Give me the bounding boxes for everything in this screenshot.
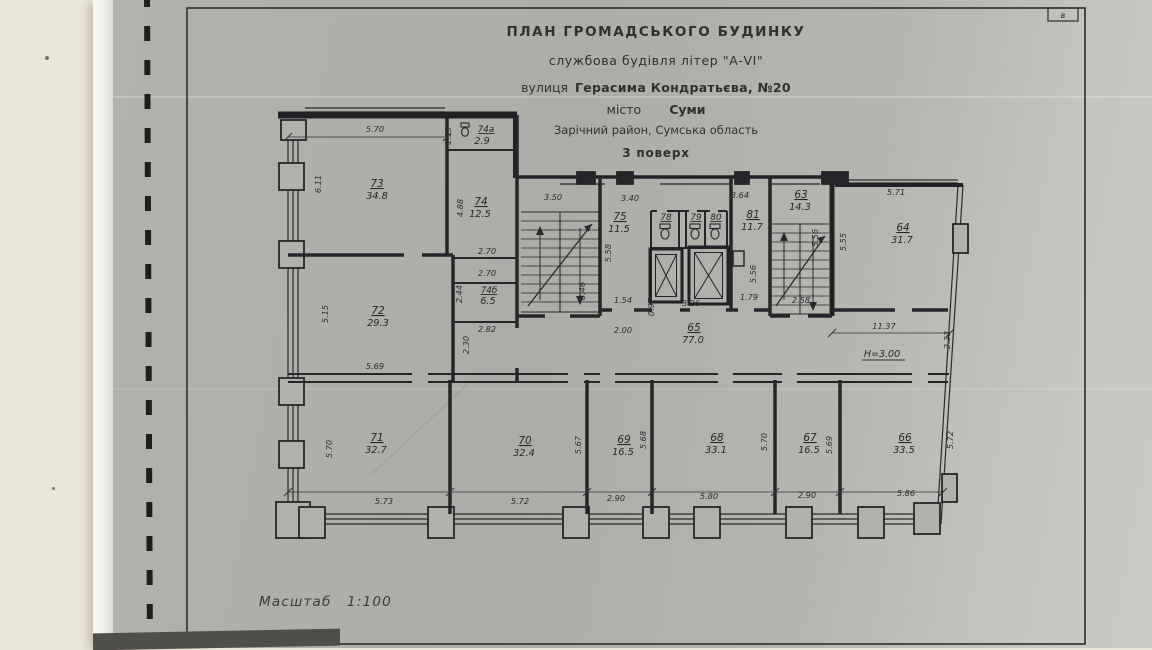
wall-speck [45, 56, 49, 60]
dim-label: 2.33 [942, 331, 952, 349]
dim-label: 5.80 [700, 491, 718, 501]
ceiling-height-mark: Н=3.00 [864, 349, 900, 360]
room-63-area: 14.3 [789, 202, 811, 213]
scratch-line [372, 382, 470, 474]
dim-label: 1.79 [740, 292, 758, 302]
room-66-number: 66 [898, 432, 912, 444]
dim-label: 2.30 [461, 336, 471, 354]
dim-label: 5.68 [638, 431, 648, 449]
room-64-number: 64 [896, 222, 909, 234]
room-70-area: 32.4 [513, 448, 535, 459]
dim-label: 1.54 [614, 295, 632, 305]
toilet-icon-74a [461, 123, 469, 136]
dim-label: 5.73 [375, 496, 393, 506]
room-65-number: 65 [687, 322, 701, 334]
duct-box [733, 251, 744, 266]
room-75-area: 11.5 [608, 224, 630, 235]
room-81-number: 81 [746, 209, 759, 221]
room-66-area: 33.5 [893, 445, 915, 456]
dim-label: 3.50 [544, 192, 562, 202]
dim-label: 5.55 [838, 233, 848, 251]
room-74-area: 12.5 [469, 209, 491, 220]
room-67-number: 67 [803, 432, 817, 444]
room-71-number: 71 [370, 432, 383, 444]
room-78-number: 78 [660, 213, 672, 223]
dim-label: 3.40 [621, 193, 639, 203]
dim-label: 6.11 [313, 175, 323, 193]
room-79-number: 79 [690, 213, 702, 223]
room-72-number: 72 [371, 305, 385, 317]
dim-label: 2.58 [792, 295, 810, 305]
scanned-document: ПЛАН ГРОМАДСЬКОГО БУДИНКУ службова будів… [113, 0, 1152, 648]
dim-label: 5.70 [366, 124, 384, 134]
room-74b-number: 74б [481, 286, 498, 296]
dim-label: 11.37 [872, 321, 896, 331]
room-64-area: 31.7 [891, 235, 914, 246]
dim-label: 5.15 [320, 305, 330, 323]
scale-note: Масштаб 1:100 [259, 594, 392, 610]
dim-label: 3.26 [682, 298, 700, 308]
dim-label: 5.72 [511, 496, 529, 506]
elevator-shaft-2 [689, 247, 728, 304]
dimension-labels: 5.70 6.11 1.15 4.88 2.70 2.70 2.44 2.82 … [313, 124, 955, 506]
room-81-area: 11.7 [741, 222, 764, 233]
elevator-shaft-1 [650, 249, 682, 302]
dim-label: 2.00 [614, 325, 632, 335]
dim-label: 2.70 [478, 246, 496, 256]
room-73-area: 34.8 [366, 191, 388, 202]
photo-background: ПЛАН ГРОМАДСЬКОГО БУДИНКУ службова будів… [0, 0, 1152, 648]
room-80-number: 80 [710, 213, 722, 223]
dim-label: 1.15 [443, 127, 453, 145]
dim-label: 2.70 [478, 268, 496, 278]
dim-label: 2.90 [798, 490, 816, 500]
dim-label: 5.69 [824, 436, 834, 454]
dim-label: 5.86 [897, 488, 915, 498]
room-65-area: 77.0 [682, 335, 704, 346]
frame-corner-mark: в [1061, 11, 1065, 20]
wall-speck [52, 487, 55, 490]
fold-dash-line [147, 0, 150, 648]
dim-label: 0.97 [646, 297, 656, 316]
room-69-area: 16.5 [612, 447, 634, 458]
dim-label: 5.72 [945, 431, 955, 449]
dim-label: 5.70 [324, 440, 334, 458]
dim-label: 2.44 [454, 285, 464, 303]
dim-label: 5.56 [810, 229, 820, 247]
room-71-area: 32.7 [365, 445, 388, 456]
room-74-number: 74 [474, 196, 487, 208]
room-73-number: 73 [370, 178, 383, 190]
dim-label: 5.58 [603, 244, 613, 262]
room-68-area: 33.1 [705, 445, 727, 456]
dim-label: 8.46 [577, 282, 587, 300]
dim-label: 3.64 [731, 190, 749, 200]
dim-label: 2.82 [478, 324, 496, 334]
paper-edge [93, 0, 113, 648]
dim-label: 5.69 [366, 361, 384, 371]
dim-label: 5.70 [759, 433, 769, 451]
dim-label: 2.90 [607, 493, 625, 503]
room-75-number: 75 [613, 211, 627, 223]
toilet-icon-78 [660, 224, 670, 239]
room-74a-area: 2.9 [474, 136, 490, 147]
room-67-area: 16.5 [798, 445, 820, 456]
staircase-left [521, 212, 599, 312]
room-74b-area: 6.5 [480, 296, 496, 307]
dim-label: 5.56 [748, 265, 758, 283]
room-69-number: 69 [617, 434, 631, 446]
dim-label: 5.71 [887, 187, 905, 197]
window-walls [288, 108, 963, 524]
toilet-icon-80 [710, 224, 720, 239]
dim-label: 5.67 [573, 435, 583, 454]
room-72-area: 29.3 [367, 318, 389, 329]
dim-label: 4.88 [455, 199, 465, 217]
room-63-number: 63 [794, 189, 807, 201]
floor-plan-svg: в [113, 0, 1152, 648]
toilet-icon-79 [690, 224, 700, 239]
room-74a-number: 74а [478, 125, 495, 135]
drawing-frame: в [187, 8, 1085, 644]
room-70-number: 70 [518, 435, 532, 447]
room-68-number: 68 [710, 432, 724, 444]
